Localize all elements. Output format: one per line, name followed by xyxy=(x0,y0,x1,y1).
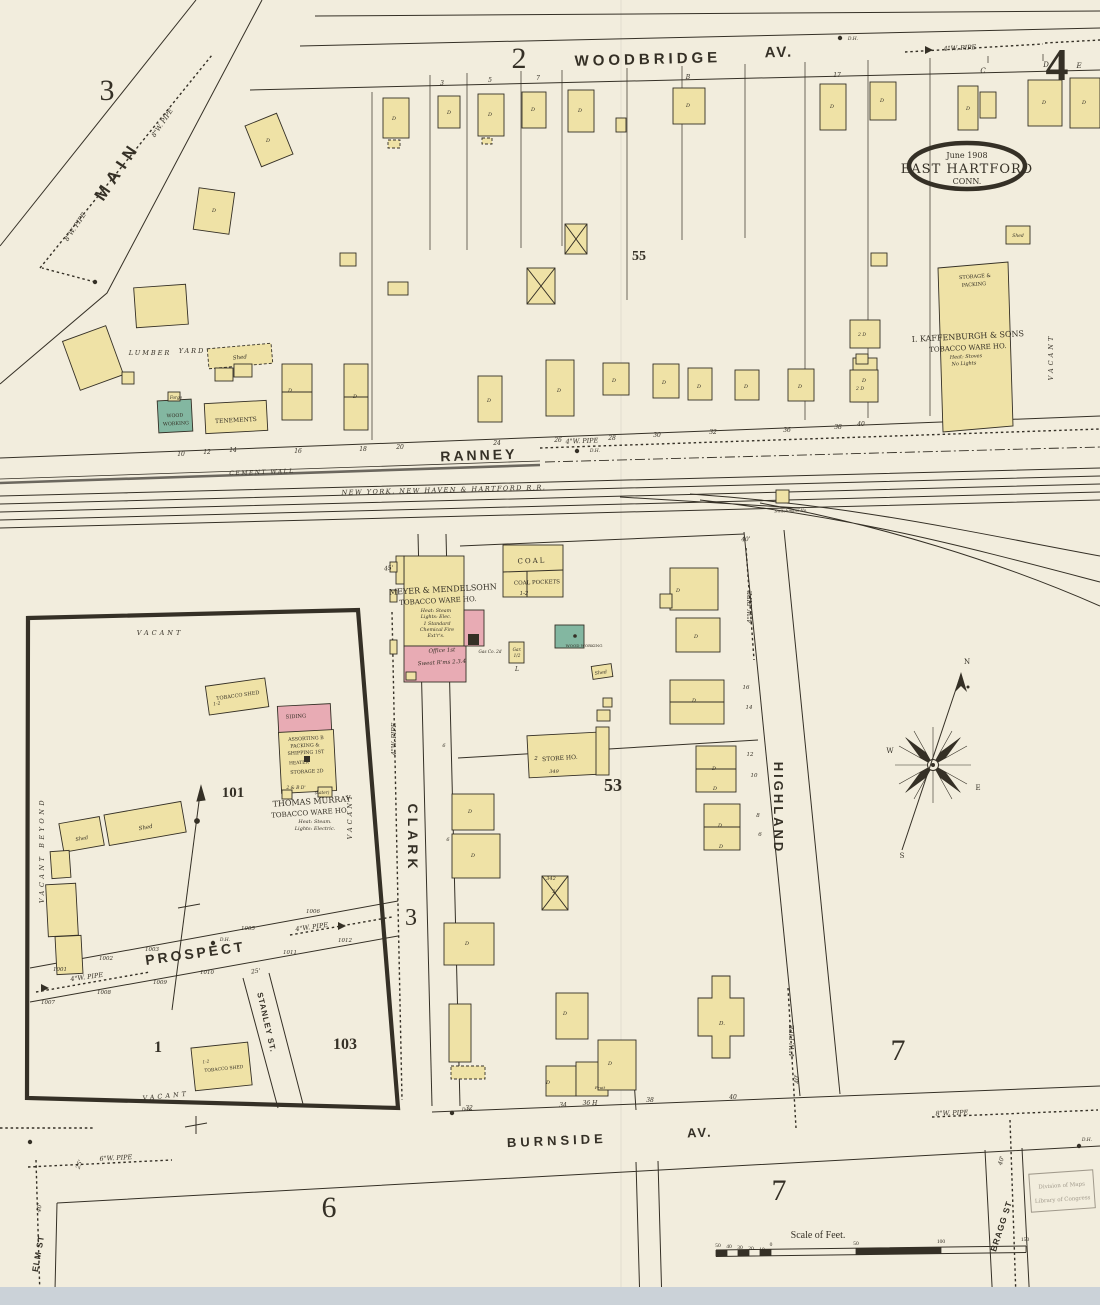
gar-floors: 1/2 xyxy=(514,653,521,658)
dwelling-mark: D xyxy=(352,394,357,400)
compass-s: S xyxy=(900,852,905,860)
dwelling-mark: D xyxy=(717,823,722,829)
hlot-10: 10 xyxy=(751,773,758,779)
lot-20: 20 xyxy=(395,444,404,451)
lot-40: 40 xyxy=(856,421,865,428)
dwelling-mark: D xyxy=(1041,100,1046,106)
dwelling-mark: D xyxy=(675,588,680,594)
hlot-8: 8 xyxy=(756,813,760,819)
block-103: 103 xyxy=(333,1036,357,1053)
dwelling-mark: D xyxy=(861,378,866,384)
wood-working-e: WOOD WORKING xyxy=(566,643,603,648)
block-53: 53 xyxy=(604,775,622,795)
dwelling-mark: D xyxy=(743,384,748,390)
dwelling-mark: D xyxy=(265,138,270,144)
murray-siding: SIDING xyxy=(286,713,307,720)
dwelling-mark: D xyxy=(696,384,701,390)
pipe-ranney: 4"W. PIPE xyxy=(564,436,598,445)
street-highland: HIGHLAND xyxy=(771,762,786,855)
shed-lumber: Shed xyxy=(233,354,248,361)
pipe-highland-n: 4"W. PIPE xyxy=(746,590,754,624)
blot-40: 40 xyxy=(728,1094,737,1101)
lot-32: 32 xyxy=(709,429,717,436)
tobacco-shed-1-floors: 1-2 xyxy=(213,701,221,708)
hn-1011: 1011 xyxy=(283,950,297,956)
vacant-east: VACANT xyxy=(1047,334,1055,381)
lot-14: 14 xyxy=(229,447,237,454)
dh-prospect: D.H. xyxy=(219,937,231,943)
dwelling-mark: D xyxy=(577,108,582,114)
lot-12: 12 xyxy=(203,449,211,456)
lot-24: 24 xyxy=(492,440,501,447)
vacant-beyond: VACANT BEYOND xyxy=(38,797,46,903)
meyer-ext-3: Ext'r's. xyxy=(426,633,445,639)
fruit: Fruit xyxy=(594,1085,606,1090)
scale-50l: 50 xyxy=(715,1243,721,1249)
dwelling-mark: D xyxy=(691,698,696,704)
hn-1005: 1005 xyxy=(241,926,255,932)
scale-150: 150 xyxy=(1021,1237,1030,1243)
lot-26: 26 xyxy=(553,437,562,444)
block-101: 101 xyxy=(222,785,245,801)
dwelling-mark: D xyxy=(1081,100,1086,106)
sheet-ref-2: 2 xyxy=(512,42,527,75)
blot-38: 38 xyxy=(646,1097,654,1104)
dwelling-mark: D xyxy=(879,98,884,104)
letter-l: L xyxy=(514,666,519,673)
dwelling-mark: D xyxy=(464,941,469,947)
dwelling-mark: D xyxy=(391,116,396,122)
dwelling-mark: D xyxy=(693,634,698,640)
dwelling-mark: D xyxy=(470,853,475,859)
shed-kaff: Shed xyxy=(1012,233,1024,239)
scale-0: 0 xyxy=(770,1242,773,1248)
hn-1001: 1001 xyxy=(53,967,67,973)
forge: Forge xyxy=(169,395,183,400)
scale-40: 40 xyxy=(726,1244,732,1250)
lot-letter-c: C xyxy=(980,67,986,75)
blot-34: 34 xyxy=(559,1102,567,1109)
hn-1009: 1009 xyxy=(153,980,167,986)
num-349: 349 xyxy=(549,769,559,775)
dwelling-mark: D xyxy=(718,844,723,850)
scale-50r: 50 xyxy=(853,1241,859,1247)
lot-18: 18 xyxy=(359,446,367,453)
hn-1007: 1007 xyxy=(41,1000,55,1006)
sheet-number: 4 xyxy=(1046,39,1069,90)
murray-later: (Later) xyxy=(315,790,330,795)
hn-1006: 1006 xyxy=(306,909,320,915)
scale-20: 20 xyxy=(748,1246,754,1252)
dwelling-mark: D xyxy=(211,208,216,214)
hlot-6: 6 xyxy=(758,832,762,838)
dwelling-mark: D xyxy=(797,384,802,390)
coal-floors: 1-2 xyxy=(520,591,529,597)
pipe-clark: 4"W. PIPE xyxy=(390,722,398,756)
scale-10: 10 xyxy=(759,1247,765,1253)
blot-32: 32 xyxy=(465,1105,473,1112)
murray-lights: Lights: Electric. xyxy=(294,826,336,832)
vacant-clark: VACANT xyxy=(346,793,354,840)
dwelling-mark: D xyxy=(685,103,690,109)
blot-36h: 36 H xyxy=(583,1100,599,1107)
dwelling-mark: D xyxy=(467,809,472,815)
dwelling-mark: D xyxy=(562,1011,567,1017)
hn-1002: 1002 xyxy=(99,956,113,962)
dwelling-mark: D xyxy=(661,380,666,386)
sheet-ref-7-south: 7 xyxy=(772,1174,787,1207)
width-40-b: 40' xyxy=(794,1074,801,1085)
lot-36: 36 xyxy=(783,427,791,434)
wlot-7: 7 xyxy=(536,75,540,82)
sheet-ref-3-side: 3 xyxy=(405,905,417,931)
tobacco-shed-2-floors: 1-2 xyxy=(202,1059,210,1065)
block-55: 55 xyxy=(632,249,646,264)
lot-letter-e: E xyxy=(1075,62,1081,70)
hn-1008: 1008 xyxy=(97,990,111,996)
stamp-state: CONN. xyxy=(953,177,982,186)
stamp-city: EAST HARTFORD xyxy=(901,162,1033,177)
lot-16: 16 xyxy=(294,448,302,455)
dwelling-mark: D xyxy=(486,398,491,404)
pipe-burnside-e: 8"W. PIPE xyxy=(935,1108,968,1117)
hlot-16: 16 xyxy=(743,685,750,691)
wlot-3: 3 xyxy=(440,80,444,87)
lot-letter-d: D xyxy=(1042,61,1049,69)
pipe-highland-s: 4"W. PIPE xyxy=(788,1024,796,1058)
compass-n: N xyxy=(964,658,970,666)
lot-38: 38 xyxy=(834,424,842,431)
lot-28: 28 xyxy=(607,435,616,442)
street-ranney: RANNEY xyxy=(440,446,518,465)
dwelling-mark: D xyxy=(530,107,535,113)
sheet-ref-7-east: 7 xyxy=(891,1034,906,1067)
wood-working-1: WOOD xyxy=(166,413,183,420)
dwelling-mark: D xyxy=(712,786,717,792)
compass-e: E xyxy=(975,784,980,792)
dwelling-mark: D xyxy=(487,112,492,118)
meyer-heat: Heat: Steam xyxy=(420,608,452,614)
scale-30: 30 xyxy=(737,1245,743,1251)
murray-heat: Heat: Steam. xyxy=(297,819,332,825)
dwelling-mark: D xyxy=(545,1080,550,1086)
street-woodbridge-av: AV. xyxy=(764,44,793,62)
scale-100: 100 xyxy=(937,1239,946,1245)
dwelling-mark: D xyxy=(711,766,716,772)
width-25: 25' xyxy=(250,967,262,975)
street-clark: CLARK xyxy=(405,804,421,873)
dwelling-mark: D xyxy=(287,388,292,394)
murray-stories: 2 & B D' xyxy=(285,785,305,791)
num-2-store: 2 xyxy=(533,756,538,762)
lumber-yard-1: LUMBER xyxy=(128,349,172,357)
dwelling-mark: D xyxy=(829,104,834,110)
dh-ranney: D.H. xyxy=(589,448,601,454)
wlot-17: 17 xyxy=(833,72,841,79)
lumber-yard-2: YARD xyxy=(179,347,206,355)
width-45: 45' xyxy=(383,564,395,572)
hlot-14: 14 xyxy=(746,705,753,711)
gas-co: Gas Co. 2d xyxy=(479,649,502,654)
num-342: 342 xyxy=(546,876,556,882)
hn-1003: 1003 xyxy=(145,947,159,953)
sheet-ref-6: 6 xyxy=(322,1191,337,1224)
fold-line xyxy=(620,0,622,1305)
dwelling-mark: D xyxy=(556,388,561,394)
compass-w: W xyxy=(886,747,894,755)
block-1: 1 xyxy=(154,1039,162,1056)
murray-heater: HEATER xyxy=(289,759,310,766)
lot-30: 30 xyxy=(653,432,661,439)
dh-bragg: D.H. xyxy=(1081,1137,1093,1143)
gar-label: Gar. xyxy=(513,647,522,652)
cross-dwelling: D. xyxy=(718,1021,725,1027)
dh-woodbridge: D.H. xyxy=(847,36,859,42)
lot-10: 10 xyxy=(177,451,185,458)
wlot-b: B xyxy=(685,74,691,81)
wlot-5: 5 xyxy=(488,77,492,84)
coal-label: COAL xyxy=(517,557,546,566)
scan-edge xyxy=(0,1287,1100,1305)
dwelling-mark: D xyxy=(611,378,616,384)
dwelling-mark: D xyxy=(607,1061,612,1067)
meyer-ext-1: 1 Standard xyxy=(423,621,450,627)
vacant-top: VACANT xyxy=(137,629,184,637)
scale-bar-title: Scale of Feet. xyxy=(791,1230,846,1241)
meyer-lights: Lights: Elec. xyxy=(420,614,452,620)
kaff-sub-1: 2 D xyxy=(857,332,866,338)
width-40-a: 40' xyxy=(740,536,751,544)
hn-1012: 1012 xyxy=(338,938,352,944)
hn-1010: 1010 xyxy=(200,970,214,976)
meyer-ext-2: Chemical Fire xyxy=(420,627,454,633)
sheet-ref-3-top: 3 xyxy=(100,74,115,107)
hlot-12: 12 xyxy=(747,752,754,758)
map-canvas: Scale of Feet. June 1908 EAST HARTFORD C… xyxy=(0,0,1100,1305)
dwelling-mark: D xyxy=(965,106,970,112)
dwelling-mark: D xyxy=(446,110,451,116)
stamp-date: June 1908 xyxy=(945,151,987,160)
num-2-barn: 2 xyxy=(551,889,555,895)
sanborn-map-page: Scale of Feet. June 1908 EAST HARTFORD C… xyxy=(0,0,1100,1305)
street-burnside-av: AV. xyxy=(687,1124,713,1140)
kaff-sub-2: 2 D xyxy=(855,386,864,392)
